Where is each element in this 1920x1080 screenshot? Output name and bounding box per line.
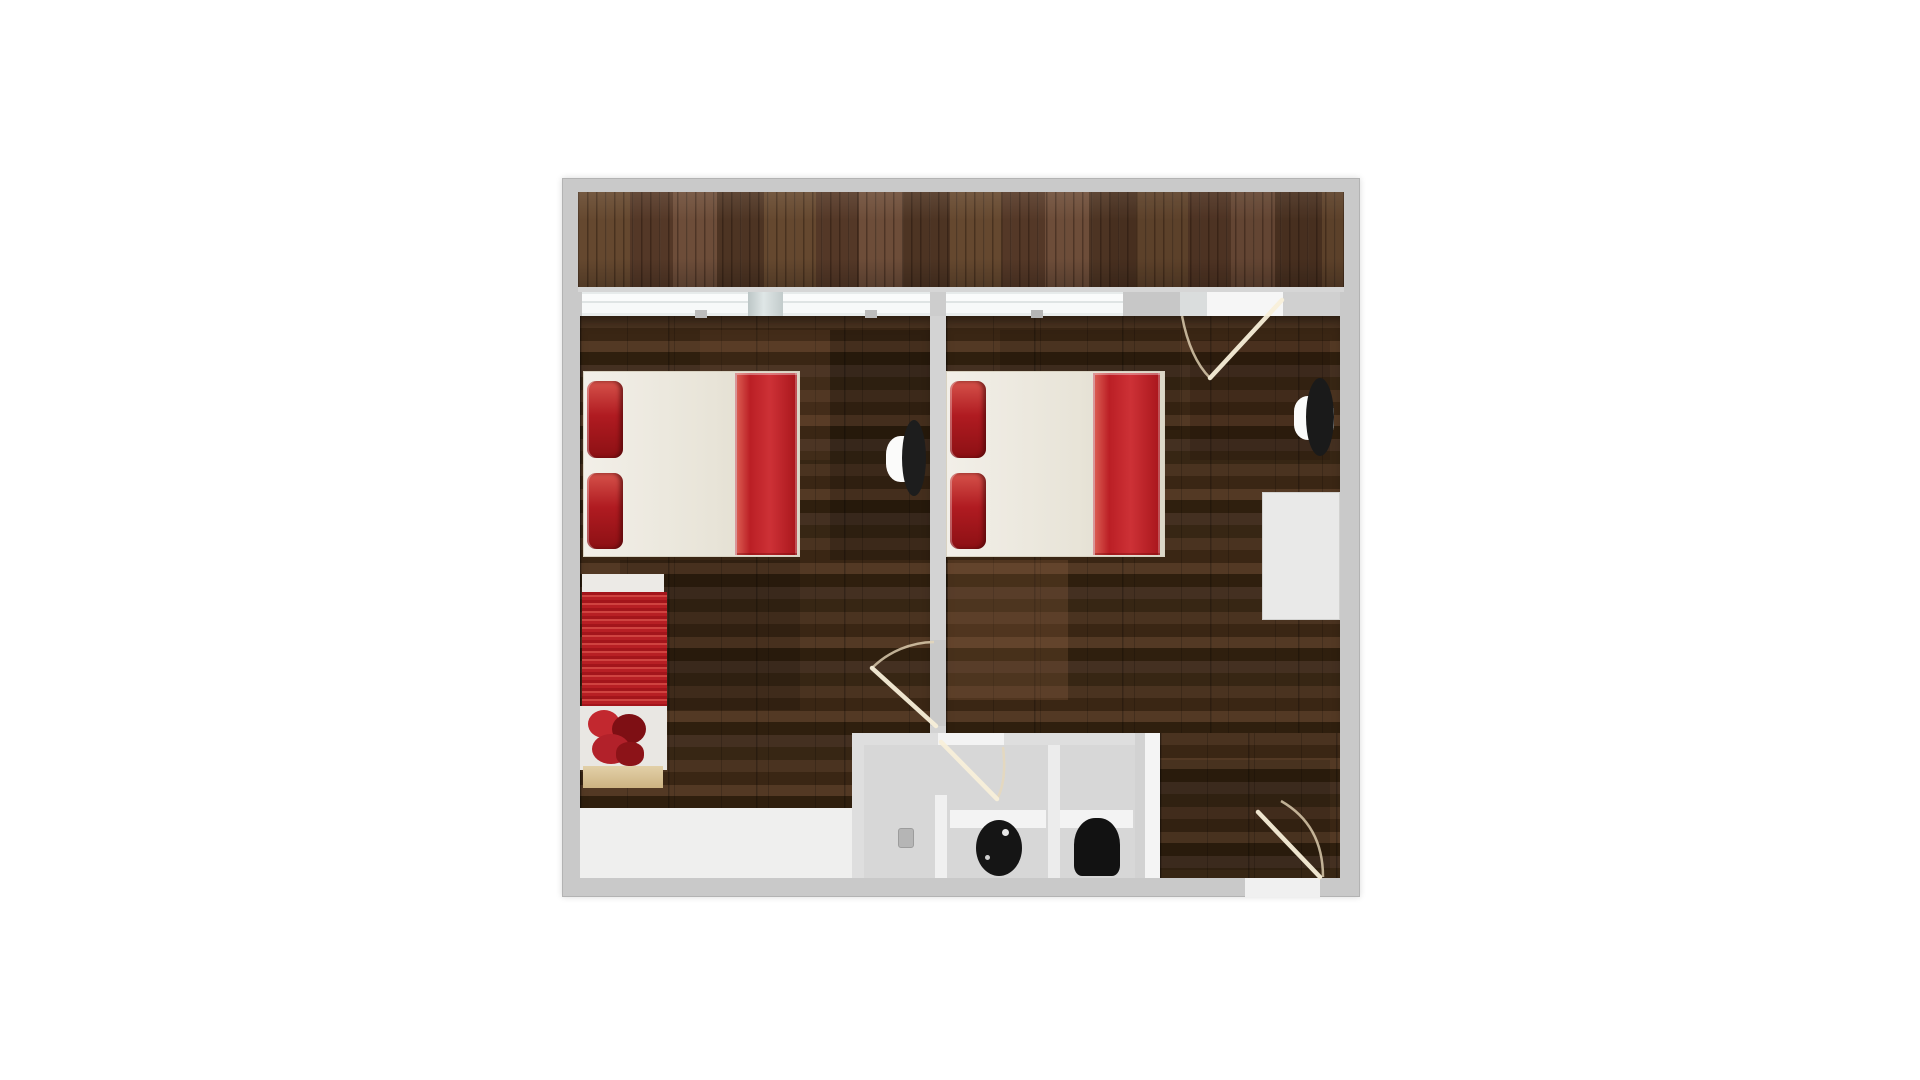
floor-plan-render: [0, 0, 1920, 1080]
wall-lamp-left: [902, 420, 926, 496]
toilet-left-highlight: [1002, 829, 1009, 836]
bed-left-blanket: [735, 373, 797, 555]
toilet-left-dot: [985, 855, 990, 860]
wc-divider-wall: [1048, 745, 1060, 878]
window-glass-2: [783, 292, 930, 316]
toilet-left: [976, 820, 1022, 876]
entry-threshold: [1245, 878, 1320, 897]
bathroom-right-wall: [1135, 733, 1145, 878]
window-mullion: [748, 292, 783, 316]
desk: [1262, 492, 1340, 620]
divider-wall: [930, 316, 946, 640]
window-glass-1: [582, 292, 748, 316]
bed-right-pillow-top: [950, 381, 986, 458]
left-floor-white-strip: [580, 808, 852, 878]
deck-shade-patch: [1110, 192, 1344, 287]
wall-segment-b: [1283, 292, 1340, 316]
bathroom-left-wall: [852, 733, 864, 878]
daybed-ribbed-cushion: [582, 592, 667, 708]
floor-patch-6: [1160, 760, 1330, 870]
divider-wall-stub: [930, 726, 946, 733]
daybed-base: [583, 766, 663, 788]
bed-right-blanket: [1093, 373, 1160, 555]
wall-junction: [930, 292, 946, 316]
window-frame-tick-3: [1031, 310, 1043, 318]
shower-stub-wall: [935, 795, 947, 878]
deck-door-frame: [1180, 292, 1207, 316]
bathroom-doorway: [938, 733, 1004, 745]
bed-left-pillow-bottom: [587, 473, 623, 549]
bathroom-top-wall-right: [1004, 733, 1135, 745]
daybed-blanket-pile-4: [616, 742, 644, 766]
floor-plan-screenshot: [0, 0, 1920, 1080]
bed-right-pillow-bottom: [950, 473, 986, 549]
bathroom-top-wall-left: [852, 733, 938, 745]
floor-patch-4: [948, 560, 1068, 700]
bathroom-right-lining: [1145, 733, 1160, 878]
wall-lamp-right: [1306, 378, 1334, 456]
shower-drain: [898, 828, 914, 848]
bed-left-pillow-top: [587, 381, 623, 458]
toilet-right: [1074, 818, 1120, 876]
wall-segment-a: [1123, 292, 1180, 316]
window-frame-tick-1: [695, 310, 707, 318]
daybed-frame-top: [582, 574, 664, 594]
deck-doorway: [1207, 292, 1283, 316]
window-frame-tick-2: [865, 310, 877, 318]
